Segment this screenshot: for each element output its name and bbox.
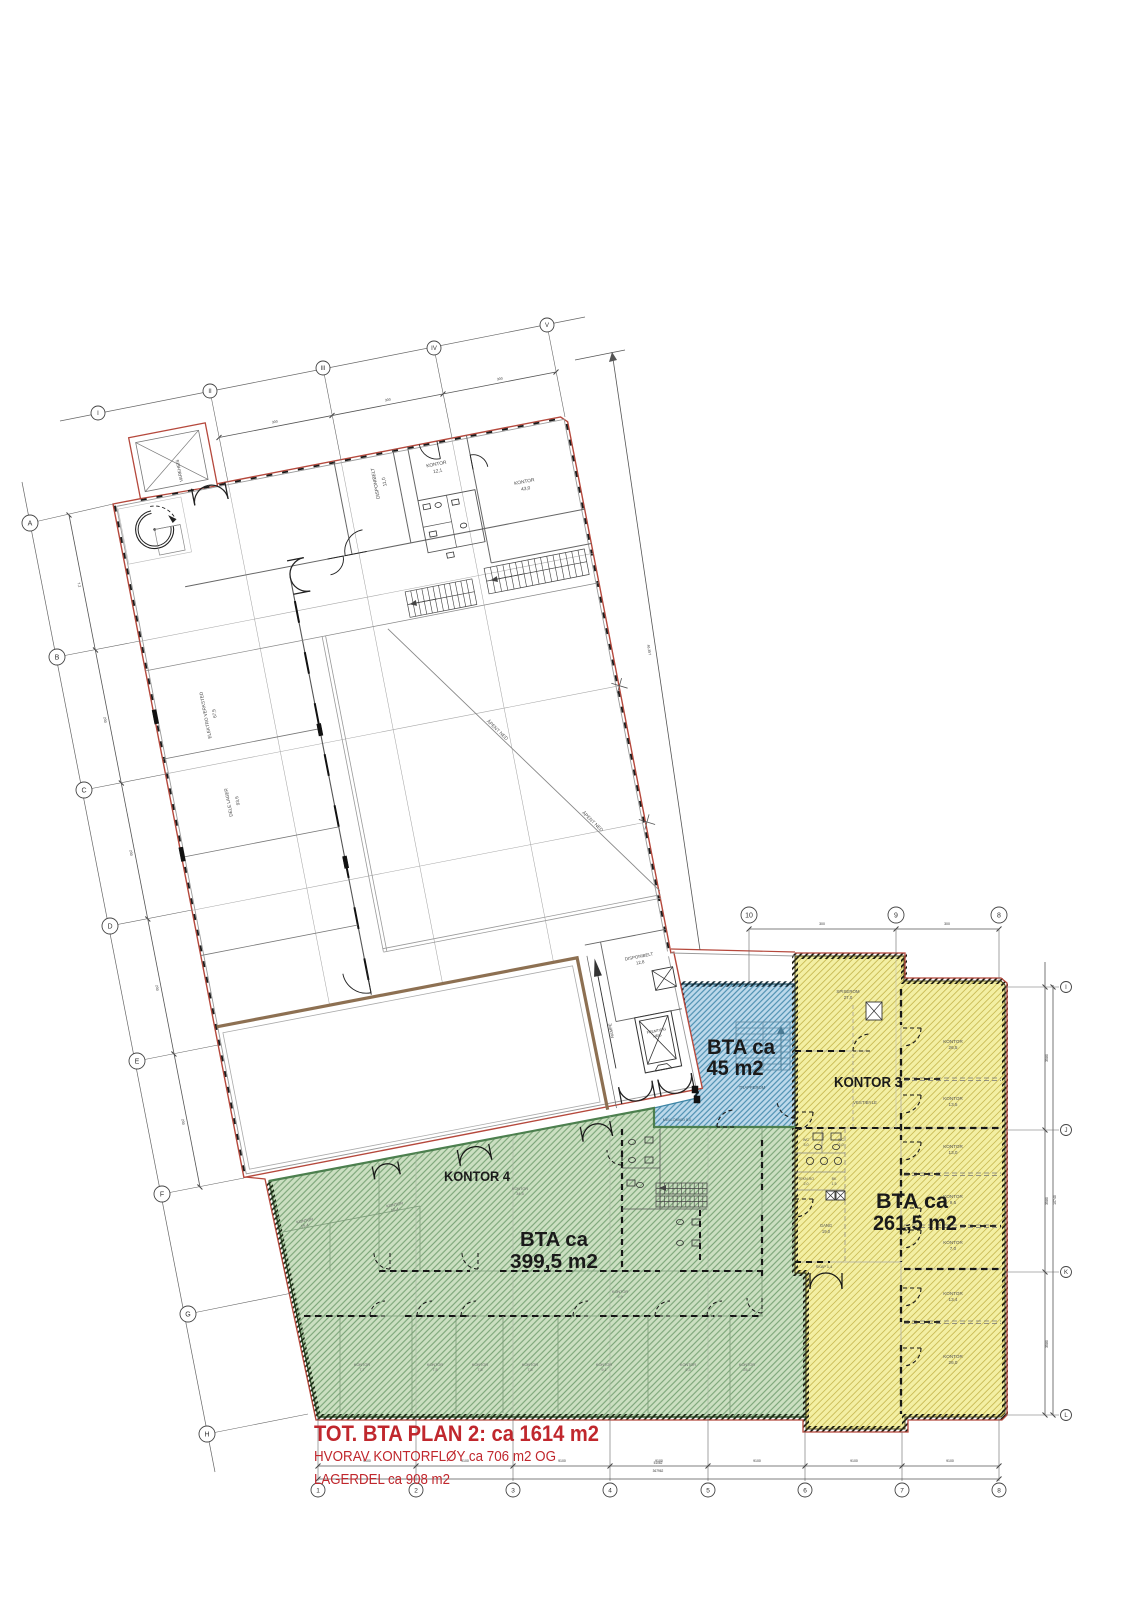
svg-text:26,0: 26,0 [949,1360,958,1365]
svg-text:300: 300 [819,922,825,926]
svg-text:K: K [1064,1270,1068,1276]
svg-text:BTA ca: BTA ca [876,1190,948,1213]
svg-text:1: 1 [316,1487,320,1494]
svg-text:KONTOR: KONTOR [472,1363,488,1367]
svg-text:2,0: 2,0 [804,1182,809,1186]
svg-text:9100: 9100 [753,1459,761,1463]
svg-text:WC: WC [838,1138,845,1142]
svg-text:34,5: 34,5 [516,1192,523,1196]
svg-text:II: II [208,389,212,395]
svg-text:7,5: 7,5 [432,1368,437,1372]
svg-text:8: 8 [997,1487,1001,1494]
svg-text:367962: 367962 [653,1469,664,1473]
svg-text:7,5: 7,5 [527,1368,532,1372]
svg-text:KONTOR: KONTOR [943,1291,963,1296]
svg-text:TRAPPEROM: TRAPPEROM [739,1085,766,1090]
svg-text:9100: 9100 [558,1459,566,1463]
svg-text:KONTOR: KONTOR [427,1363,443,1367]
svg-text:E: E [135,1059,140,1066]
svg-text:KONTOR: KONTOR [943,1144,963,1149]
svg-text:KONTOR 3: KONTOR 3 [834,1075,902,1091]
svg-text:KONTOR: KONTOR [943,1039,963,1044]
svg-text:LAGERDEL ca 908 m2: LAGERDEL ca 908 m2 [314,1472,450,1488]
svg-text:13,5: 13,5 [949,1102,958,1107]
svg-text:6: 6 [803,1487,807,1494]
svg-text:10: 10 [745,913,753,920]
svg-text:KONTOR: KONTOR [739,1363,755,1367]
svg-text:7,0: 7,0 [950,1246,957,1251]
svg-text:H: H [204,1432,209,1439]
svg-text:3,0: 3,0 [803,1143,808,1147]
svg-text:F: F [160,1192,164,1199]
svg-text:IV: IV [431,346,437,352]
svg-text:KONTOR: KONTOR [943,1096,963,1101]
svg-text:KONTOR: KONTOR [943,1240,963,1245]
svg-text:9,9: 9,9 [617,1295,622,1299]
svg-text:TOT. BTA PLAN 2: ca 1614 m2: TOT. BTA PLAN 2: ca 1614 m2 [314,1421,599,1446]
svg-text:45 m2: 45 m2 [707,1057,764,1080]
svg-text:BTA ca: BTA ca [707,1036,775,1059]
svg-text:KONTOR: KONTOR [522,1363,538,1367]
svg-text:8: 8 [997,913,1001,920]
svg-text:BK: BK [832,1177,837,1181]
svg-text:WC: WC [803,1138,810,1142]
svg-text:300: 300 [944,922,950,926]
svg-text:KONTOR 4: KONTOR 4 [444,1169,510,1184]
svg-text:TEKN.RO: TEKN.RO [798,1177,814,1181]
svg-text:9,5: 9,5 [950,1200,957,1205]
svg-text:9,1: 9,1 [601,1368,606,1372]
svg-text:13,0: 13,0 [949,1150,958,1155]
svg-text:V: V [545,323,549,329]
svg-text:2: 2 [414,1487,418,1494]
svg-text:A: A [28,521,33,528]
svg-text:13,4: 13,4 [949,1297,958,1302]
svg-text:7,7: 7,7 [359,1368,364,1372]
svg-text:C: C [81,788,86,795]
svg-text:KONTOR: KONTOR [943,1354,963,1359]
svg-text:399,5 m2: 399,5 m2 [510,1250,598,1273]
svg-text:26,5: 26,5 [949,1045,958,1050]
svg-text:G: G [185,1312,190,1319]
svg-text:BTA ca: BTA ca [520,1228,589,1251]
svg-text:KONTOR: KONTOR [612,1290,628,1294]
svg-text:SKAP 1,4: SKAP 1,4 [816,1265,832,1269]
svg-text:27,0: 27,0 [844,995,853,1000]
svg-text:3580: 3580 [1045,1054,1049,1062]
svg-text:B: B [55,655,60,662]
svg-text:7: 7 [900,1487,904,1494]
svg-text:5: 5 [706,1487,710,1494]
svg-text:HVORAV KONTORFLØY ca 706 m2 OG: HVORAV KONTORFLØY ca 706 m2 OG [314,1449,556,1465]
svg-text:KONTOR: KONTOR [512,1187,528,1191]
svg-text:KONTOR: KONTOR [596,1363,612,1367]
svg-text:3: 3 [511,1487,515,1494]
svg-text:D: D [107,924,112,931]
svg-text:J: J [1065,1128,1068,1134]
svg-text:VESTIBYLE: VESTIBYLE [853,1100,877,1105]
svg-text:25,2: 25,2 [743,1368,750,1372]
svg-text:4: 4 [608,1487,612,1494]
svg-text:10740: 10740 [1053,1195,1057,1205]
svg-text:9100: 9100 [850,1459,858,1463]
svg-text:261,5 m2: 261,5 m2 [873,1212,957,1235]
svg-text:7,5: 7,5 [477,1368,482,1372]
svg-text:9100: 9100 [946,1459,954,1463]
svg-text:GANG: GANG [820,1223,832,1228]
svg-text:9,3: 9,3 [685,1368,690,1372]
svg-text:1,5: 1,5 [832,1182,837,1186]
svg-text:SPISEROM: SPISEROM [836,989,860,994]
svg-text:9: 9 [894,913,898,920]
svg-text:KONTOR: KONTOR [680,1363,696,1367]
svg-text:MELLOMVEI 5,0: MELLOMVEI 5,0 [663,1118,692,1122]
svg-text:3,0: 3,0 [838,1143,843,1147]
svg-text:3580: 3580 [1045,1340,1049,1348]
svg-text:51062: 51062 [654,1461,663,1465]
svg-text:III: III [320,366,325,372]
svg-text:KONTOR: KONTOR [354,1363,370,1367]
svg-text:19,0: 19,0 [822,1229,831,1234]
svg-text:3580: 3580 [1045,1197,1049,1205]
